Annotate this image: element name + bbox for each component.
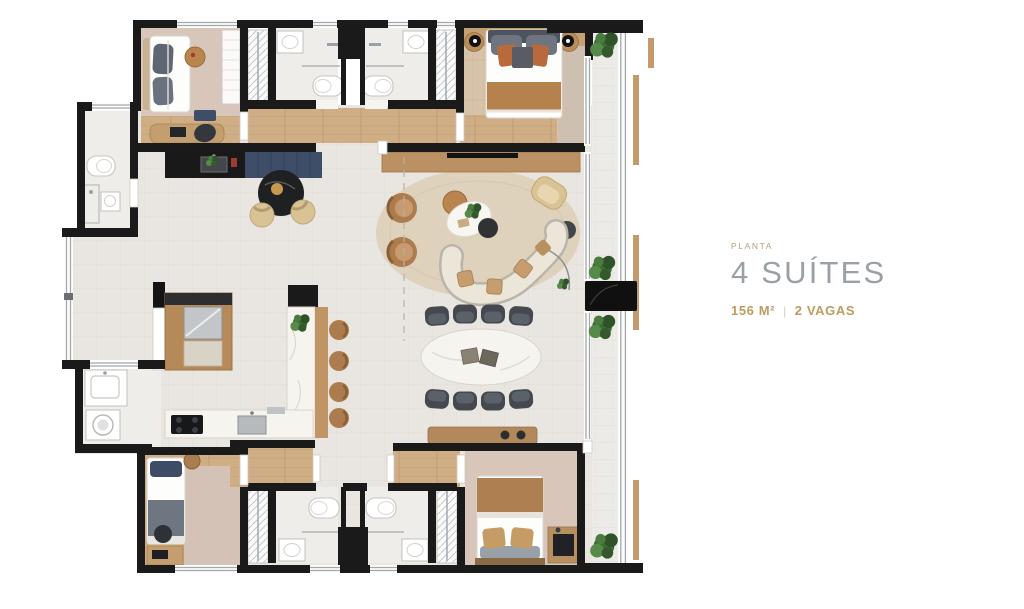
wall <box>341 59 346 105</box>
wall <box>338 20 365 59</box>
wall <box>360 59 365 105</box>
dresser-top <box>553 534 574 556</box>
door-powder-room <box>130 179 138 207</box>
wall <box>240 28 248 112</box>
parking-value: 2 VAGAS <box>795 303 855 318</box>
counter-jar <box>231 158 237 167</box>
toilet <box>313 76 343 96</box>
exterior-notch <box>28 104 77 237</box>
lounge-chair <box>387 193 417 223</box>
shower-bar <box>369 43 381 46</box>
exterior-notch <box>28 237 66 361</box>
wall-balcony-bottom <box>583 563 643 573</box>
window <box>437 20 455 28</box>
door-threshold <box>365 100 387 109</box>
faucet <box>103 371 107 375</box>
wall <box>428 28 436 105</box>
island-wood-rail <box>315 307 328 438</box>
vanity <box>402 539 428 561</box>
bar-stool <box>329 320 349 340</box>
bed-blanket <box>487 82 561 111</box>
wall <box>130 207 138 232</box>
corridor-top-wood <box>248 108 456 143</box>
wall <box>240 487 248 565</box>
wall <box>137 447 248 455</box>
washer-drum <box>98 420 109 431</box>
pouf-dark <box>478 218 498 238</box>
info-panel: PLANTA 4 SUÍTES 156 M²|2 VAGAS <box>731 241 886 318</box>
shelf-closet <box>222 30 240 104</box>
window <box>177 20 237 28</box>
wall <box>428 487 436 563</box>
living-opening <box>316 143 380 153</box>
dining-chair <box>481 305 505 324</box>
door-threshold <box>316 100 338 109</box>
bed-bench <box>194 110 216 121</box>
barbecue-grill <box>585 281 637 311</box>
exterior-notch <box>28 361 75 454</box>
stool <box>184 453 200 469</box>
closet-rail <box>437 489 457 563</box>
wall <box>456 28 464 113</box>
stats-separator: | <box>783 304 787 318</box>
wall <box>393 443 585 451</box>
page: PLANTA 4 SUÍTES 156 M²|2 VAGAS <box>0 0 1024 609</box>
bed-pillow <box>152 43 174 74</box>
exterior-notch <box>28 0 133 104</box>
lamp-top <box>473 39 477 43</box>
deck-wood-strip <box>648 38 654 68</box>
wall <box>388 100 456 109</box>
sliding-glass-door <box>584 56 591 146</box>
vanity <box>403 31 429 53</box>
sideboard-speaker <box>501 431 510 440</box>
door-suite4 <box>457 455 465 483</box>
toilet <box>309 498 339 518</box>
sliding-glass-door <box>584 152 591 281</box>
exterior-notch <box>28 454 137 606</box>
small-appliance <box>267 407 285 414</box>
sofa-pillow <box>486 279 502 295</box>
deck-wood-strip <box>633 75 639 165</box>
tv <box>447 153 518 158</box>
wall <box>577 451 585 565</box>
wall-top-right <box>547 26 643 33</box>
shower-bar <box>327 43 339 46</box>
window <box>370 565 397 573</box>
dining-chair <box>481 392 505 411</box>
plan-title: 4 SUÍTES <box>731 255 886 291</box>
area-value: 156 M² <box>731 303 775 318</box>
sideboard-speaker <box>517 431 526 440</box>
sofa-pillow <box>457 270 475 288</box>
desk-monitor <box>152 550 168 559</box>
wall <box>77 102 85 236</box>
suite2-entry-wood <box>460 115 557 143</box>
table-tray <box>461 348 479 365</box>
toilet <box>363 76 393 96</box>
cooktop <box>171 415 203 434</box>
duvet-fold <box>477 512 543 518</box>
wall <box>388 483 457 491</box>
toilet <box>366 498 396 518</box>
plan-stats: 156 M²|2 VAGAS <box>731 303 886 318</box>
sink <box>101 192 120 211</box>
door-suite3 <box>240 455 248 485</box>
decor <box>191 53 195 57</box>
closet-rail <box>248 30 268 104</box>
shower-drain <box>89 190 93 194</box>
desk-monitor <box>170 127 186 137</box>
bar-stool <box>329 382 349 402</box>
cabinet-top <box>165 293 232 305</box>
bed-blanket <box>477 478 543 512</box>
door-suite1 <box>240 112 248 140</box>
decor <box>556 528 561 533</box>
wall <box>248 100 316 109</box>
wall <box>341 487 346 529</box>
window <box>90 360 138 369</box>
door-frame <box>378 141 387 154</box>
wall <box>338 527 368 565</box>
drawer-panel <box>184 341 222 366</box>
dining-chair <box>424 306 449 327</box>
vanity <box>279 539 305 561</box>
gold-bowl <box>271 183 283 195</box>
dining-chair <box>508 389 533 410</box>
door-bathroom3 <box>313 455 320 482</box>
island-black-cap <box>288 285 318 307</box>
deck-wood-strip <box>633 480 639 560</box>
wall <box>248 483 316 491</box>
wall <box>457 487 465 565</box>
lounge-chair <box>387 237 417 267</box>
wall <box>133 143 316 152</box>
plan-eyebrow: PLANTA <box>731 241 886 251</box>
wall <box>130 111 138 179</box>
dining-chair <box>508 306 533 327</box>
wall <box>360 487 365 529</box>
fridge-column <box>153 282 165 308</box>
wall <box>75 360 83 453</box>
bed-pillow <box>482 527 506 549</box>
dining-chair <box>453 392 477 411</box>
closet-rail <box>436 30 456 106</box>
door-bathroom4 <box>387 455 394 482</box>
toilet <box>87 156 115 176</box>
vanity <box>277 31 303 53</box>
wall <box>133 20 141 104</box>
wall <box>268 487 276 563</box>
door-suite2 <box>456 113 464 141</box>
lamp-top <box>566 39 570 43</box>
bed-pillow <box>510 527 534 549</box>
window <box>388 20 408 28</box>
window <box>92 102 130 111</box>
window <box>175 565 237 573</box>
bar-stool <box>329 408 349 428</box>
breakfast-chair <box>250 203 274 227</box>
window-band <box>64 237 73 360</box>
desk-chair <box>154 525 172 543</box>
closet-rail <box>248 489 268 563</box>
bed-headboard <box>475 558 545 565</box>
wall <box>230 440 315 448</box>
wall <box>137 444 145 573</box>
bed-tray <box>512 47 533 68</box>
wall <box>62 228 138 237</box>
dining-chair <box>424 389 449 410</box>
window <box>313 20 337 28</box>
window-mullion <box>64 293 73 300</box>
door-balcony <box>583 441 592 453</box>
side-table <box>185 47 205 67</box>
bed-pillow <box>152 76 173 105</box>
island-sink <box>238 416 266 434</box>
wall-tv <box>380 143 585 152</box>
faucet <box>250 411 254 415</box>
window <box>310 565 340 573</box>
bed-pillow <box>150 461 182 477</box>
dining-chair <box>453 305 477 324</box>
corridor-bottom-tile <box>313 448 393 487</box>
bar-stool <box>329 351 349 371</box>
wall <box>268 28 276 105</box>
